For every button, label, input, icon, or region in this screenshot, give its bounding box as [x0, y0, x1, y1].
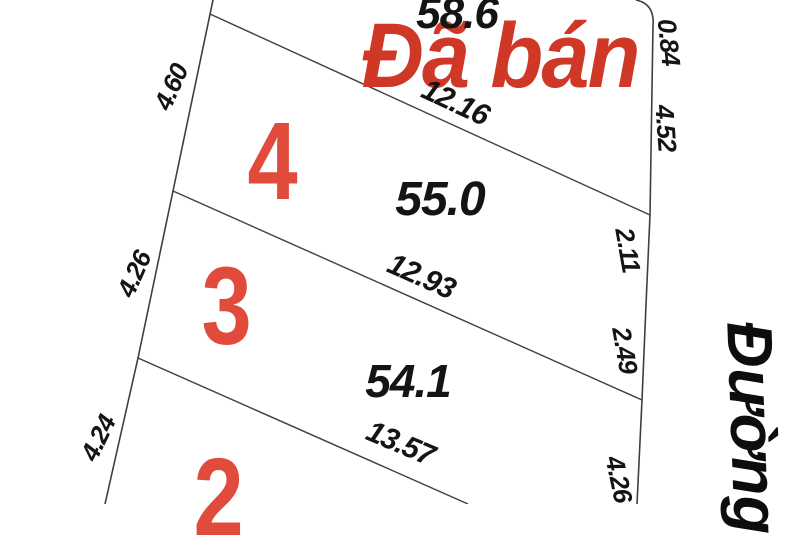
plot-number-2: 2	[194, 443, 241, 553]
road-side-dim-3: 2.11	[611, 226, 644, 275]
sold-stamp-text: Đã bán	[361, 10, 638, 102]
land-plot-diagram: Đã bán 58.6 55.0 54.1 4 3 2 12.16 12.93 …	[0, 0, 800, 504]
area-label-top-plot: 58.6	[416, 0, 498, 36]
road-side-dim-1: 0.84	[654, 17, 685, 66]
area-label-plot-4: 55.0	[395, 176, 484, 224]
plot-number-3: 3	[202, 252, 249, 362]
road-side-dim-4: 2.49	[608, 325, 642, 375]
road-side-dim-2: 4.52	[651, 104, 680, 152]
area-label-plot-3: 54.1	[365, 358, 451, 404]
plot-number-4: 4	[248, 107, 295, 217]
street-name-label: Đường	[717, 320, 788, 535]
